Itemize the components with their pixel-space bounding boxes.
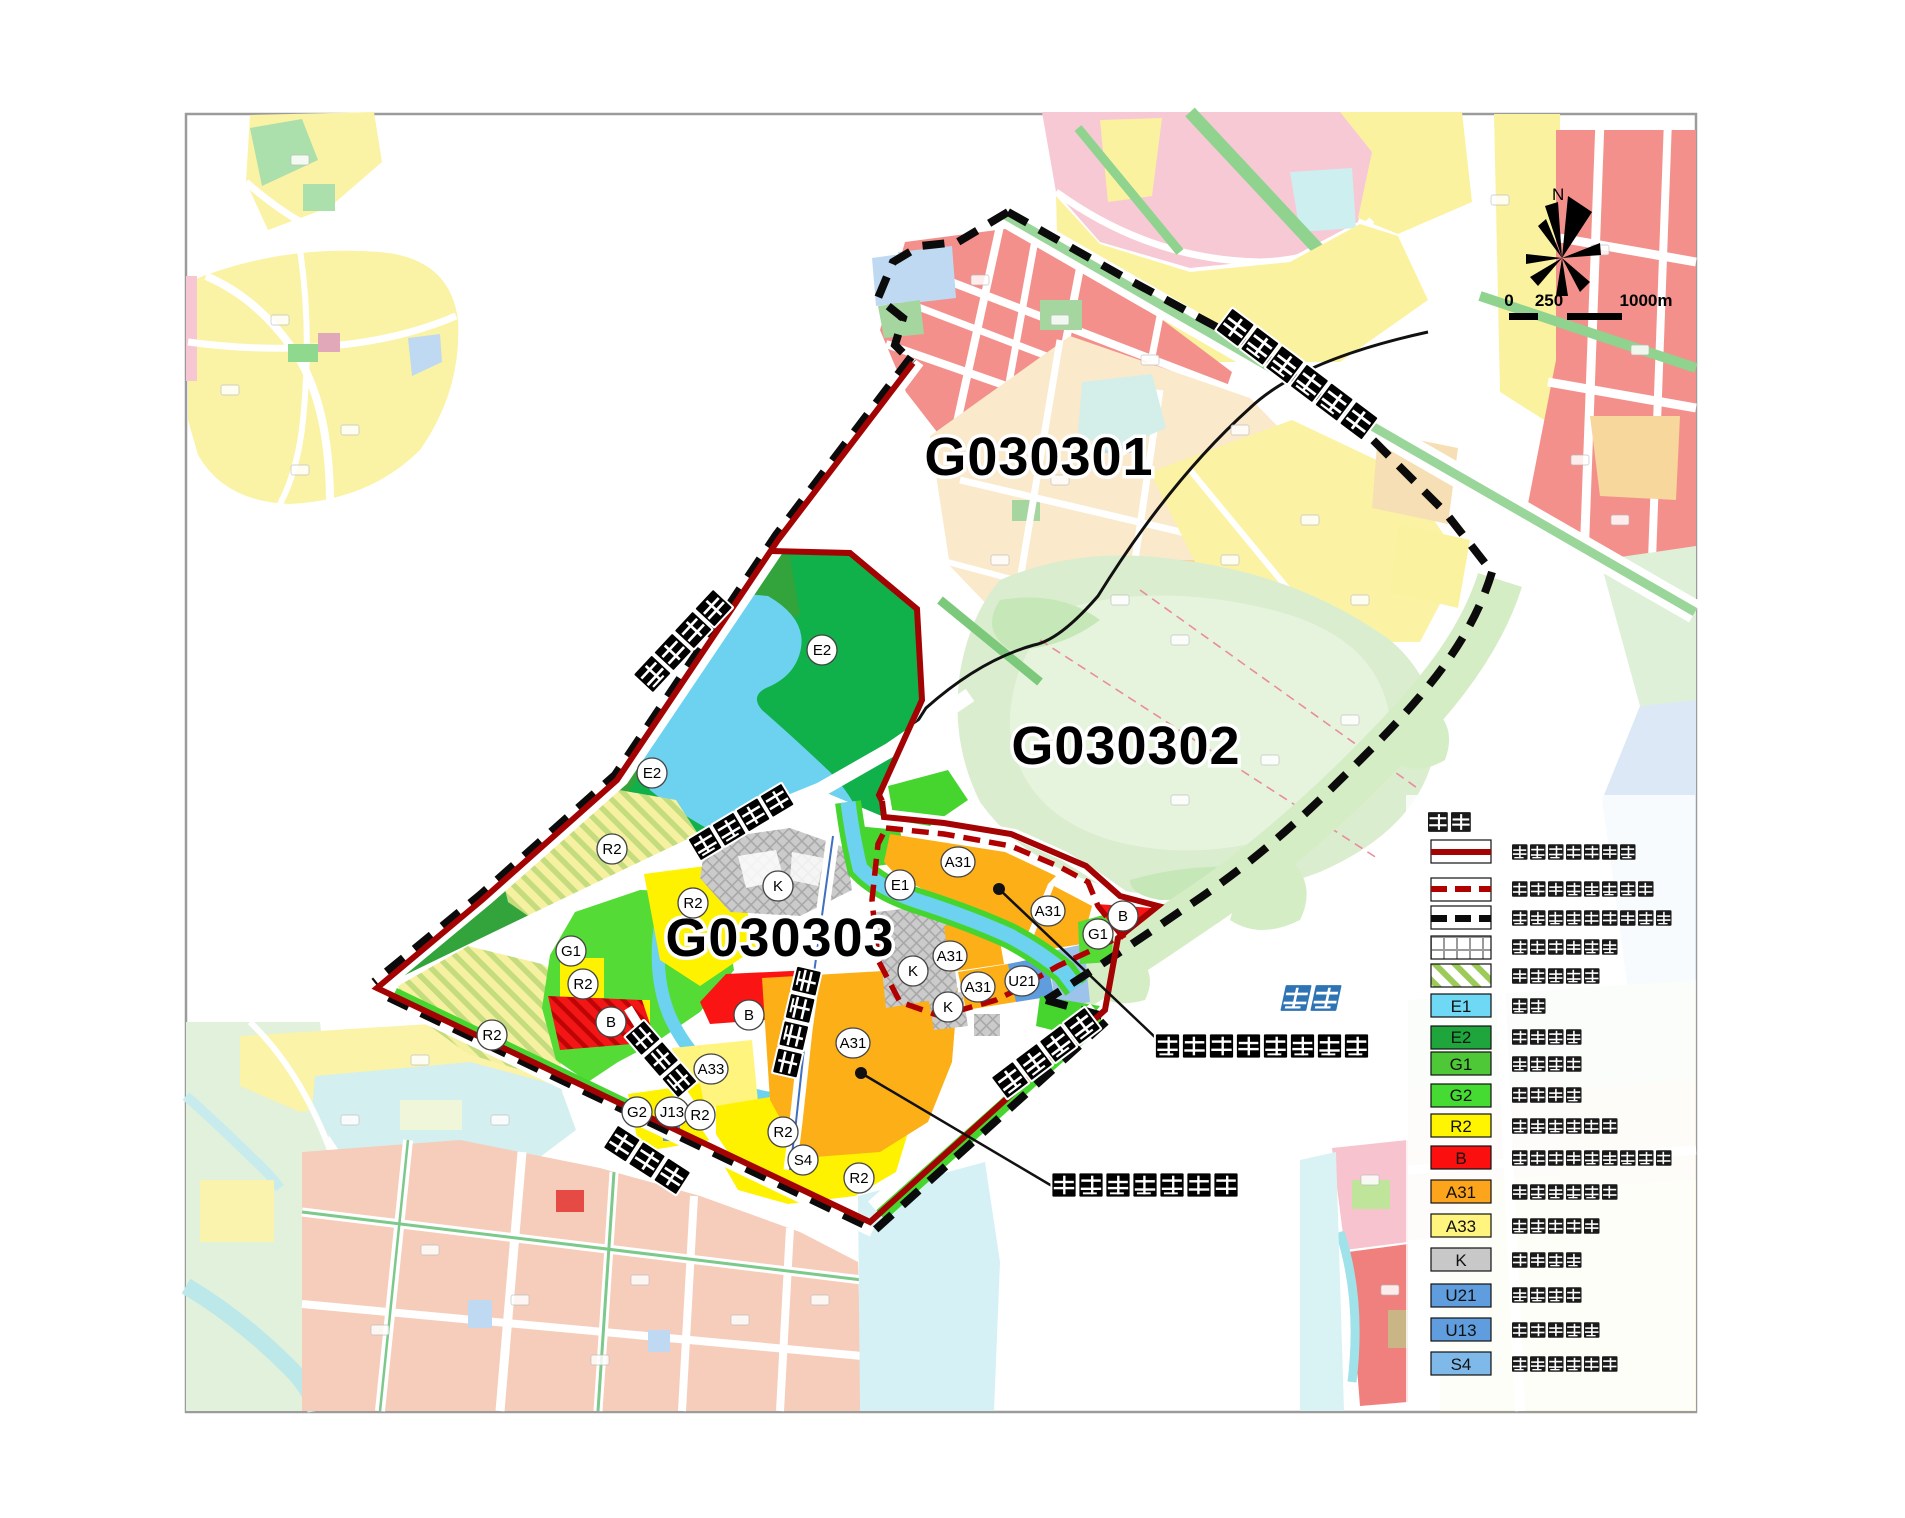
svg-text:B: B [606, 1014, 616, 1031]
svg-text:G2: G2 [627, 1104, 647, 1121]
svg-text:U13: U13 [1445, 1321, 1476, 1340]
svg-text:R2: R2 [683, 895, 702, 912]
svg-text:B: B [744, 1007, 754, 1024]
svg-text:A31: A31 [945, 854, 972, 871]
svg-text:S4: S4 [1451, 1355, 1472, 1374]
svg-text:E2: E2 [643, 765, 661, 782]
svg-text:U21: U21 [1445, 1286, 1476, 1305]
svg-text:R2: R2 [773, 1124, 792, 1141]
svg-text:G030301: G030301 [924, 427, 1153, 487]
svg-text:R2: R2 [1450, 1117, 1472, 1136]
svg-text:B: B [1118, 908, 1128, 925]
svg-text:E1: E1 [1451, 997, 1472, 1016]
svg-text:0: 0 [1504, 291, 1513, 310]
svg-text:R2: R2 [849, 1170, 868, 1187]
svg-text:K: K [773, 878, 783, 895]
svg-text:R2: R2 [602, 841, 621, 858]
svg-text:1000m: 1000m [1620, 291, 1673, 310]
svg-text:U21: U21 [1008, 973, 1036, 990]
svg-text:G1: G1 [561, 943, 581, 960]
svg-text:G030302: G030302 [1011, 716, 1240, 776]
svg-text:K: K [1455, 1251, 1467, 1270]
svg-text:A33: A33 [698, 1061, 725, 1078]
svg-text:E2: E2 [1451, 1028, 1472, 1047]
svg-text:G1: G1 [1088, 926, 1108, 943]
svg-text:S4: S4 [794, 1152, 812, 1169]
svg-text:R2: R2 [690, 1107, 709, 1124]
svg-text:A31: A31 [937, 948, 964, 965]
svg-text:N: N [1552, 185, 1564, 204]
svg-text:R2: R2 [573, 976, 592, 993]
svg-text:G2: G2 [1450, 1086, 1473, 1105]
svg-text:K: K [943, 999, 953, 1016]
svg-text:J13: J13 [660, 1104, 684, 1121]
svg-text:B: B [1455, 1149, 1466, 1168]
svg-text:E2: E2 [813, 642, 831, 659]
svg-text:A33: A33 [1446, 1217, 1476, 1236]
svg-text:R2: R2 [482, 1027, 501, 1044]
svg-text:A31: A31 [965, 979, 992, 996]
svg-text:A31: A31 [1446, 1183, 1476, 1202]
svg-text:E1: E1 [891, 877, 909, 894]
svg-text:K: K [908, 963, 918, 980]
svg-text:G1: G1 [1450, 1055, 1473, 1074]
svg-text:A31: A31 [1035, 903, 1062, 920]
svg-text:250: 250 [1535, 291, 1563, 310]
svg-text:A31: A31 [840, 1035, 867, 1052]
